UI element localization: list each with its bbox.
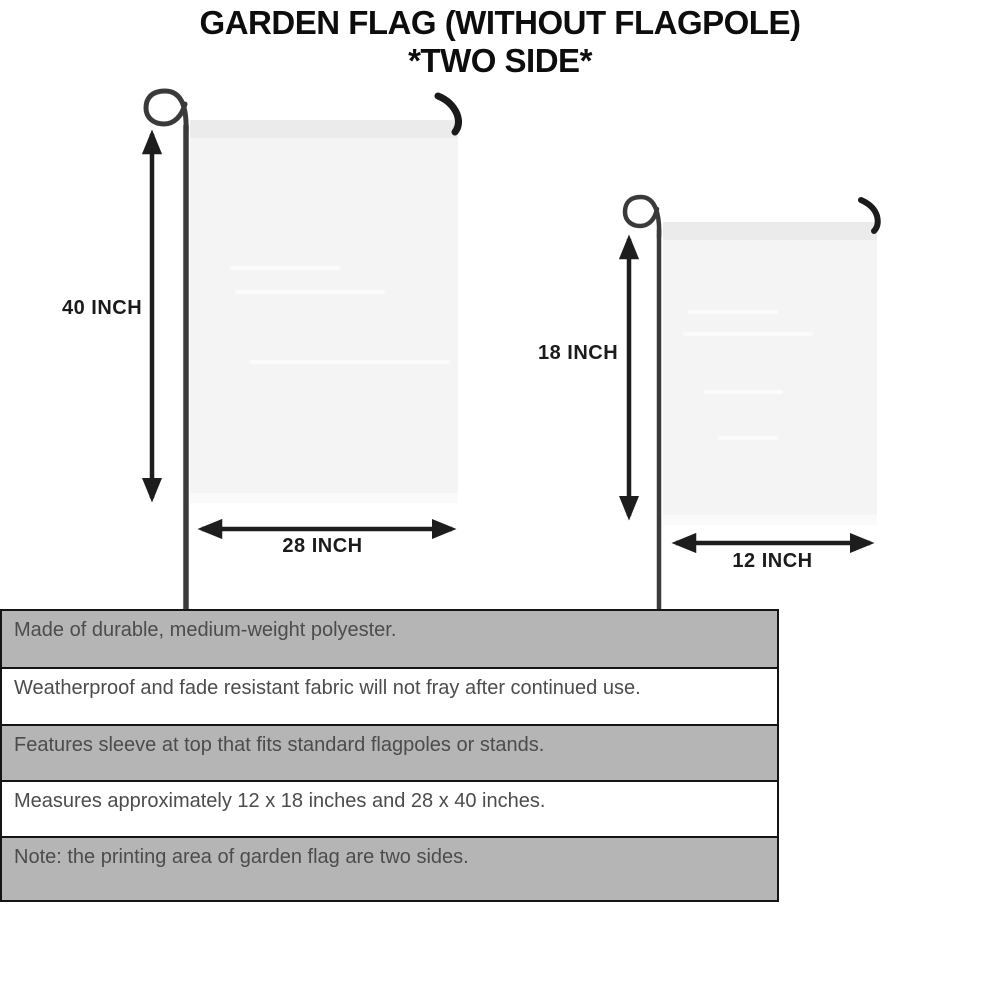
feature-table: Made of durable, medium-weight polyester… <box>0 609 779 902</box>
small-flag-width-label: 12 INCH <box>690 550 855 573</box>
feature-row: Note: the printing area of garden flag a… <box>2 836 777 900</box>
large-flag-hook-icon <box>438 96 459 132</box>
small-flag-hook-icon <box>861 200 878 231</box>
feature-row: Weatherproof and fade resistant fabric w… <box>2 667 777 724</box>
feature-row: Made of durable, medium-weight polyester… <box>2 611 777 667</box>
large-flag-height-label: 40 INCH <box>62 297 142 320</box>
feature-row: Measures approximately 12 x 18 inches an… <box>2 780 777 836</box>
feature-row: Features sleeve at top that fits standar… <box>2 724 777 780</box>
large-flag-width-label: 28 INCH <box>240 535 405 558</box>
small-flag-height-label: 18 INCH <box>538 342 618 365</box>
product-infographic: GARDEN FLAG (WITHOUT FLAGPOLE) *TWO SIDE… <box>0 0 1000 1000</box>
